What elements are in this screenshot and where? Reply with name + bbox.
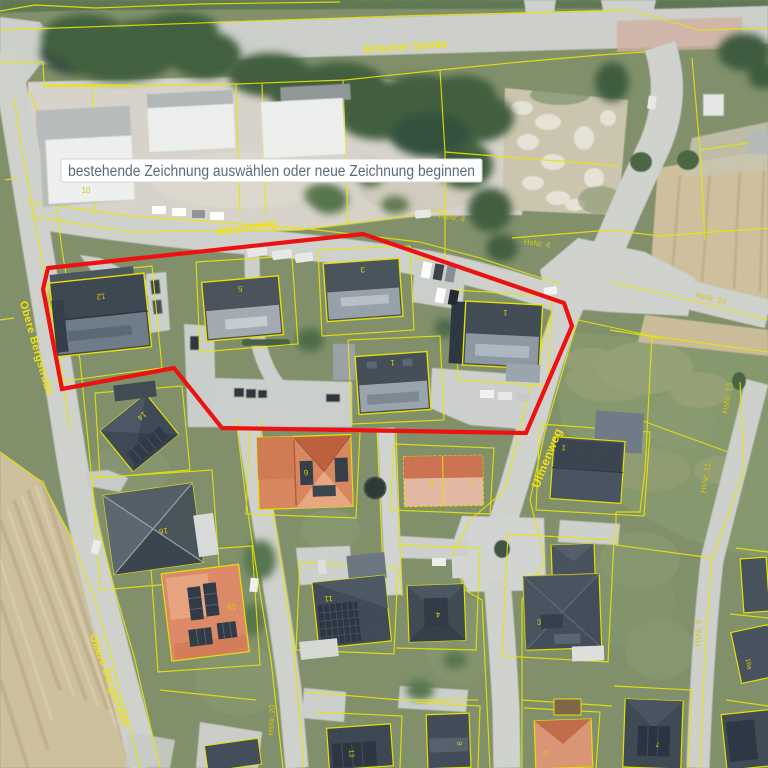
svg-text:bestehende Zeichnung auswählen: bestehende Zeichnung auswählen oder neue… xyxy=(68,163,475,180)
